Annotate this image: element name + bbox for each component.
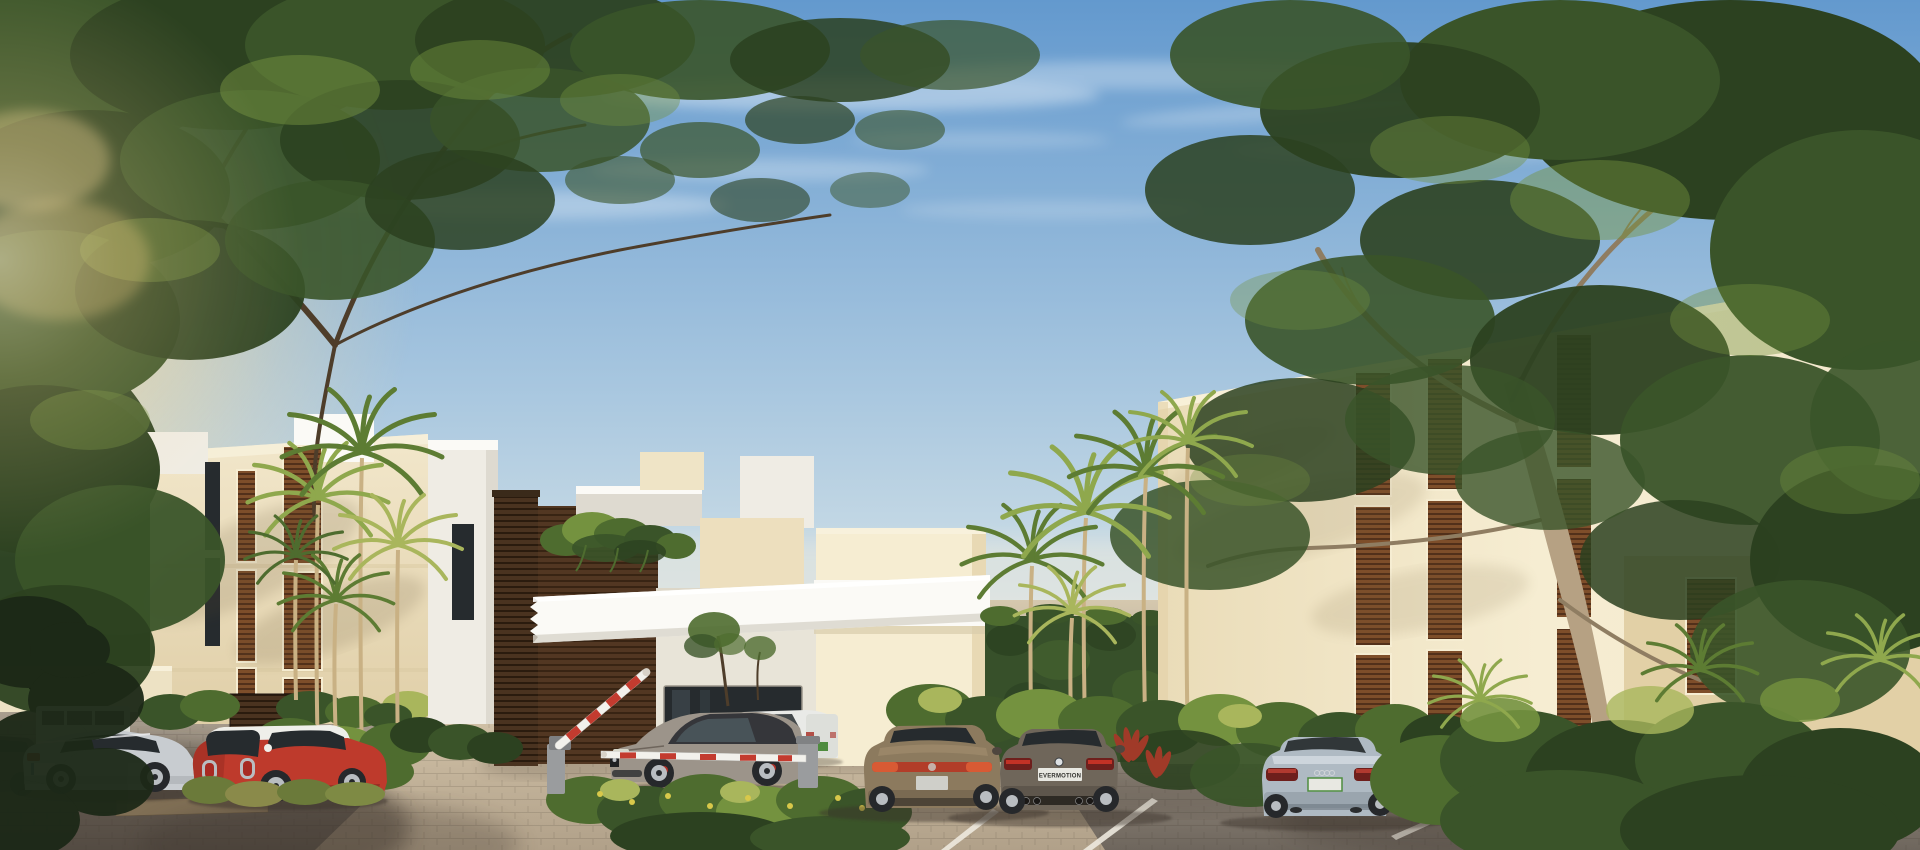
- license-plate: [916, 776, 948, 790]
- barrier-post: [547, 744, 565, 794]
- white-volume: [740, 456, 814, 528]
- architectural-rendering: EVERMOTION: [0, 0, 1920, 850]
- bmw-roundel: [1055, 758, 1063, 766]
- side-mirror: [992, 747, 1002, 755]
- render-canvas: EVERMOTION: [0, 0, 1920, 850]
- slit-window: [452, 524, 474, 620]
- side-mirror: [264, 744, 272, 752]
- plate-text: EVERMOTION: [1039, 774, 1081, 780]
- cream-volume: [700, 518, 804, 588]
- barrier-post: [798, 740, 818, 788]
- vw-badge: [928, 763, 936, 771]
- license-plate-green-border: [1308, 778, 1342, 791]
- side-mirror: [1115, 745, 1125, 753]
- taillight: [830, 732, 836, 738]
- license-plate-evermotion: EVERMOTION: [1038, 768, 1082, 781]
- cream-volume: [640, 452, 704, 490]
- star-badge: [613, 758, 617, 762]
